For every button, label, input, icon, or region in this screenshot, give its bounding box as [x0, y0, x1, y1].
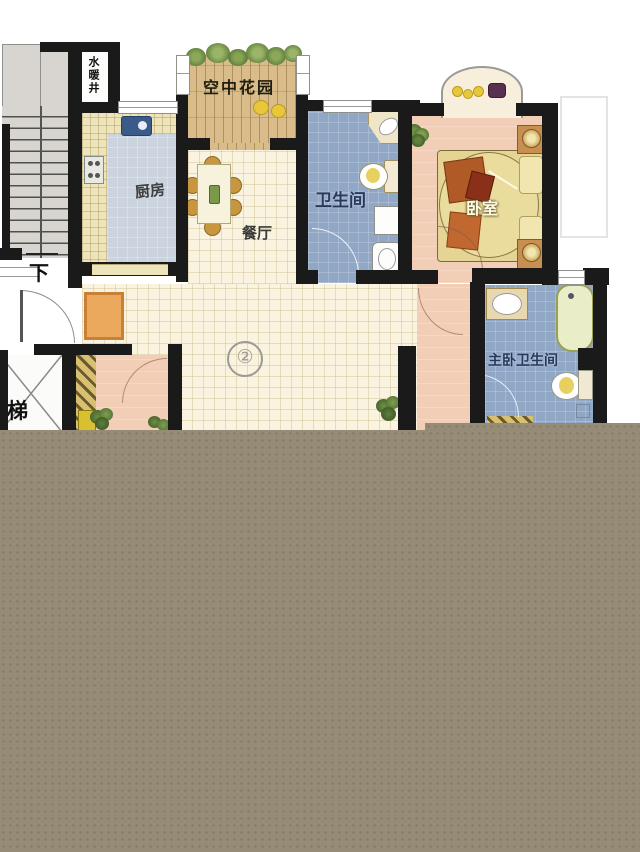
- label-dining: 餐厅: [242, 222, 272, 243]
- wall: [398, 108, 412, 283]
- wall: [176, 138, 210, 150]
- label-elevator: 梯: [7, 395, 28, 425]
- unit-number-marker: ②: [227, 341, 263, 377]
- label-sky-garden: 空中花园: [203, 74, 275, 98]
- staircase: [2, 106, 68, 258]
- floor-plan: 水暖井 空中花园 厨房 餐厅 卫生间 卧室 主卧卫生间 下 梯 ②: [0, 0, 640, 852]
- window: [558, 270, 585, 285]
- doormat: [84, 292, 124, 340]
- wall: [62, 352, 76, 432]
- wall: [296, 93, 308, 283]
- wall: [176, 93, 188, 282]
- toilet-tank: [578, 370, 593, 400]
- dining-table: [197, 164, 231, 224]
- wall: [356, 270, 412, 284]
- sink-icon: [486, 288, 528, 320]
- plant-icon: [206, 43, 230, 63]
- kitchen-sink-icon: [121, 116, 152, 136]
- window: [323, 100, 372, 113]
- stair-divider-line: [40, 46, 41, 106]
- wall: [168, 344, 182, 432]
- wall: [2, 124, 10, 258]
- label-water-shaft: 水暖井: [85, 56, 101, 95]
- masked-region: [0, 430, 640, 852]
- wall: [542, 103, 558, 285]
- stove-icon: [84, 156, 104, 184]
- label-bathroom: 卫生间: [315, 186, 366, 211]
- lemon-icon: [271, 104, 286, 118]
- plant-icon: [266, 47, 286, 65]
- wall: [470, 282, 485, 432]
- wall: [68, 42, 82, 288]
- wall: [296, 270, 318, 284]
- pillow: [519, 156, 543, 194]
- wall: [412, 270, 438, 284]
- wall: [412, 103, 444, 116]
- stair-landing: [2, 44, 70, 108]
- kitchen-counter-left: [82, 134, 107, 268]
- ac-unit-outline: [560, 96, 608, 238]
- window: [296, 55, 310, 95]
- stair-center-line: [40, 106, 42, 258]
- label-kitchen: 厨房: [134, 178, 166, 202]
- wall: [0, 248, 22, 260]
- wall: [398, 346, 416, 432]
- cup-icon: [463, 89, 473, 99]
- entry-door-leaf: [20, 290, 23, 342]
- wall: [34, 344, 132, 355]
- nightstand: [517, 125, 545, 154]
- cup-icon: [473, 86, 484, 97]
- wall: [296, 100, 323, 111]
- plant-icon: [228, 49, 248, 66]
- label-bedroom: 卧室: [466, 195, 498, 219]
- label-stairs-down: 下: [29, 257, 49, 286]
- sky-garden-floor: [188, 55, 296, 143]
- grapes-icon: [488, 83, 506, 98]
- bathtub-icon: [556, 284, 594, 352]
- entry-door-arc: [20, 290, 75, 343]
- window: [118, 101, 178, 114]
- nightstand: [517, 239, 545, 270]
- wall: [578, 348, 607, 370]
- label-master-bathroom: 主卧卫生间: [488, 350, 558, 370]
- cup-icon: [452, 86, 463, 97]
- floor-drain-icon: [576, 404, 590, 418]
- plant-icon: [90, 408, 116, 432]
- wall: [72, 102, 118, 113]
- kitchen-pass-counter: [92, 264, 168, 275]
- window: [176, 55, 190, 95]
- lemon-icon: [253, 100, 269, 115]
- direction-line: [26, 253, 58, 255]
